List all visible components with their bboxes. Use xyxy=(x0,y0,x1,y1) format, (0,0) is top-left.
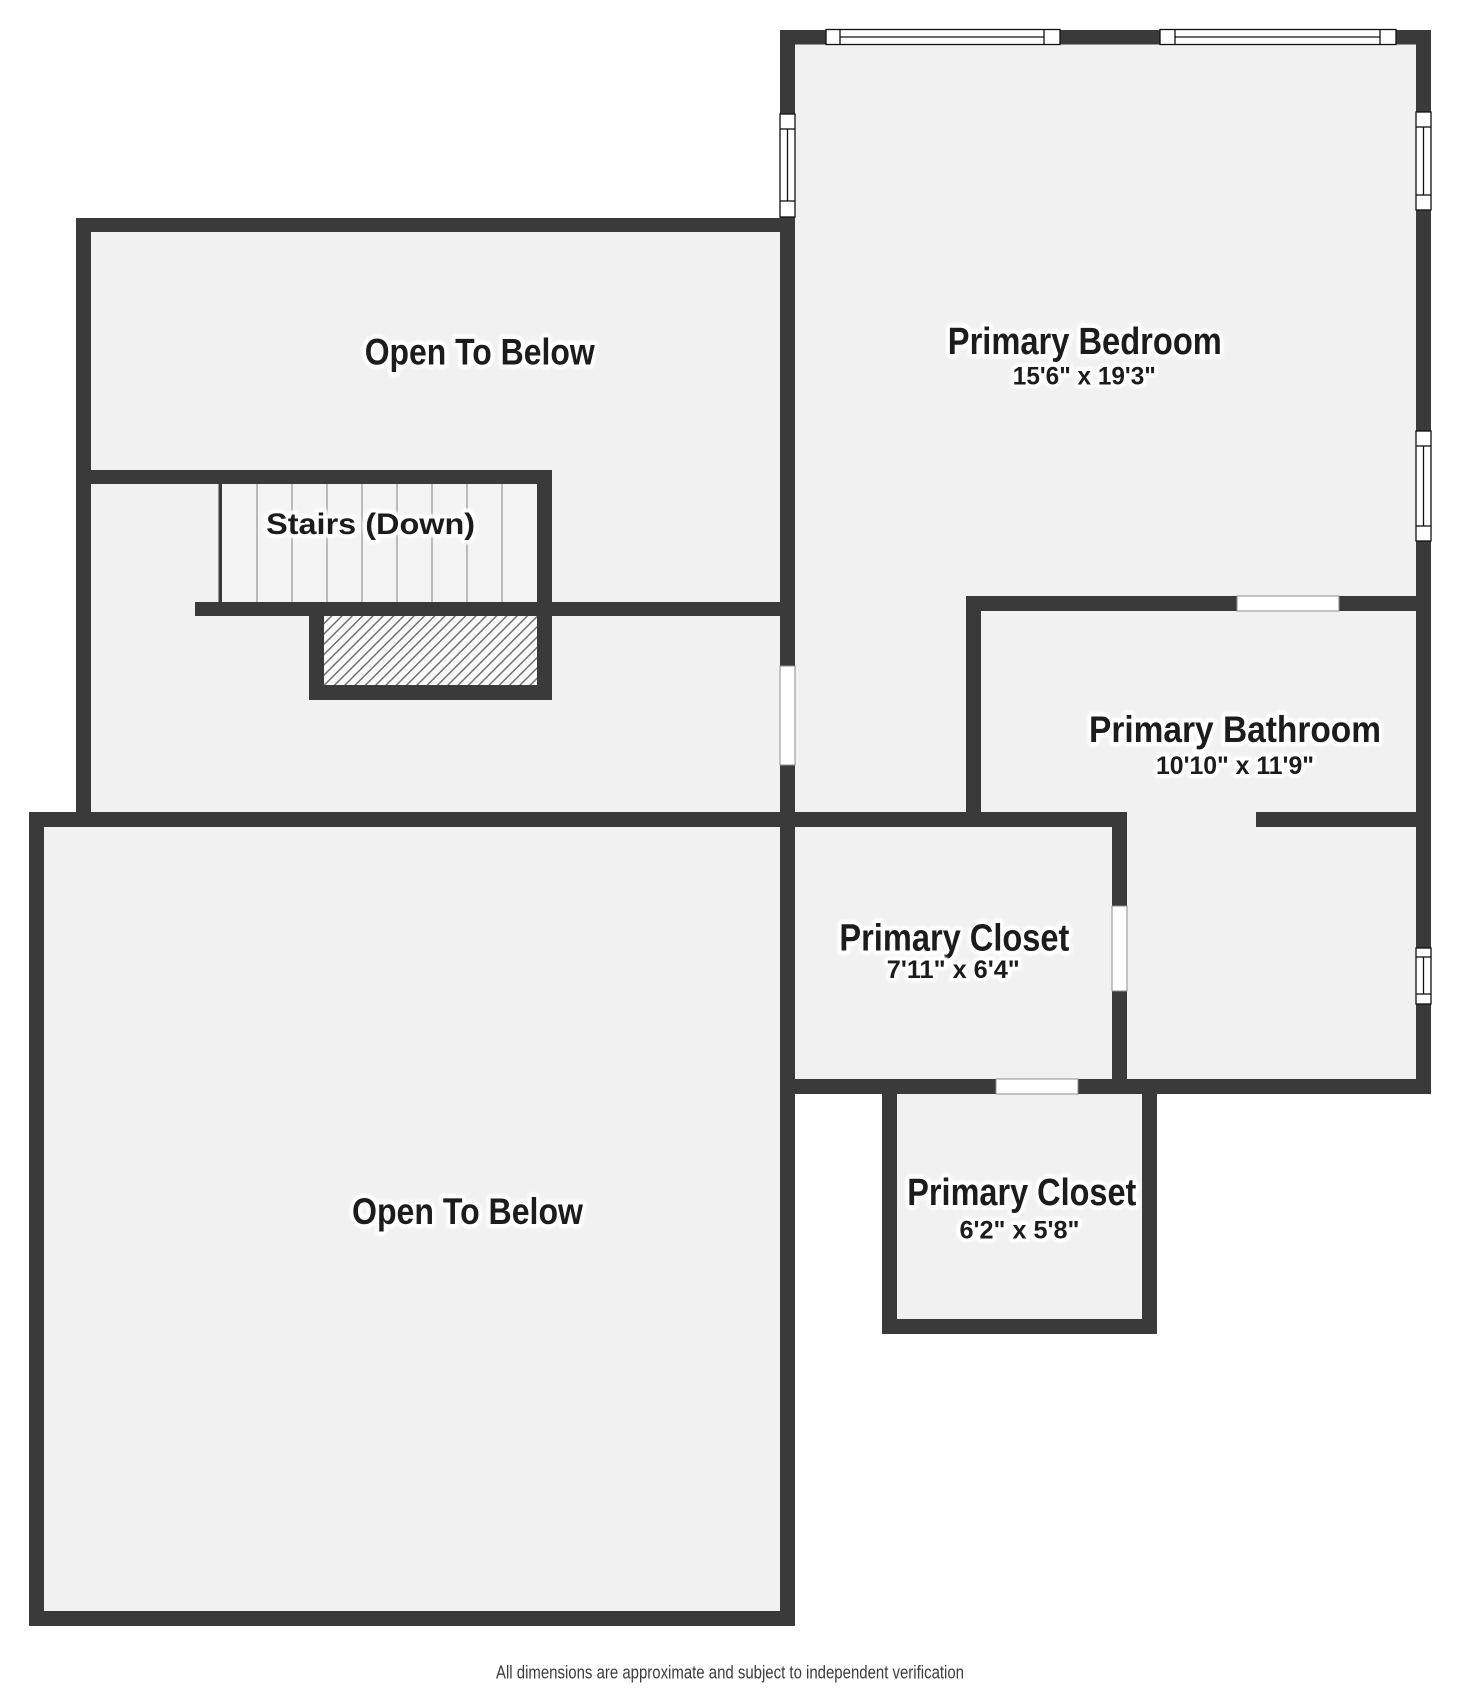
svg-text:10'10" x 11'9": 10'10" x 11'9" xyxy=(1156,752,1314,780)
svg-text:6'2" x 5'8": 6'2" x 5'8" xyxy=(960,1217,1080,1245)
svg-text:7'11" x 6'4": 7'11" x 6'4" xyxy=(887,956,1020,984)
svg-text:Primary Closet: Primary Closet xyxy=(839,918,1069,960)
svg-text:Primary Bathroom: Primary Bathroom xyxy=(1089,709,1381,750)
svg-text:Stairs (Down): Stairs (Down) xyxy=(266,508,475,541)
svg-text:Open To Below: Open To Below xyxy=(352,1191,583,1232)
svg-text:Open To Below: Open To Below xyxy=(365,332,595,373)
svg-text:Primary Bedroom: Primary Bedroom xyxy=(948,321,1222,363)
svg-text:15'6" x 19'3": 15'6" x 19'3" xyxy=(1013,362,1156,390)
svg-text:All dimensions are approximate: All dimensions are approximate and subje… xyxy=(496,1663,964,1683)
svg-text:Primary Closet: Primary Closet xyxy=(907,1172,1136,1214)
